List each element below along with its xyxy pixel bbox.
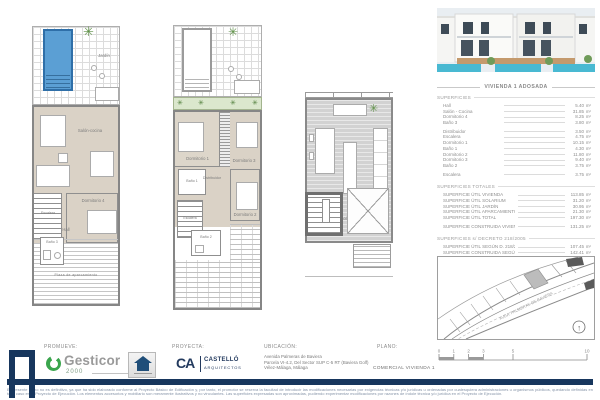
bed bbox=[236, 122, 258, 148]
section-title: SUPERFICIES s/ DECRETO 218/2005 bbox=[437, 236, 595, 241]
decreto-unit: m² bbox=[584, 250, 595, 255]
plant-icon: ✳ bbox=[177, 100, 183, 107]
leader-line bbox=[518, 200, 565, 201]
sofa bbox=[40, 115, 66, 147]
decreto-value: 142.41 bbox=[568, 250, 584, 255]
surface-unit: m² bbox=[584, 134, 595, 139]
room-label: Dormitorio 3 bbox=[224, 158, 264, 163]
badge-text-rule bbox=[134, 373, 152, 374]
leader-line bbox=[518, 247, 565, 248]
surface-value: 3.80 bbox=[568, 120, 584, 125]
total-unit: m² bbox=[584, 198, 595, 203]
house-outline: Dormitorio 1 Dormitorio 3 Baño 1 Distrib… bbox=[173, 110, 262, 310]
decreto-label: SUPERFICIE ÚTIL SEGÚN D. 218/2005 bbox=[443, 244, 515, 249]
outdoor-table bbox=[315, 128, 335, 174]
plano-label: PLANO: bbox=[377, 344, 398, 350]
chair bbox=[309, 152, 314, 160]
badge-house-icon bbox=[134, 356, 152, 363]
header-rule bbox=[552, 87, 595, 88]
scale-tick: 0 bbox=[438, 349, 441, 354]
decreto-unit: m² bbox=[584, 244, 595, 249]
decreto-row: SUPERFICIE CONSTRUIDA SEGÚN D. 218/2005 … bbox=[437, 250, 595, 256]
total-label: SUPERFICIE ÚTIL SOLARIUM bbox=[443, 198, 515, 203]
ground-floor-plan: ✳ Jardín Salón-cocina Escalera Dormito bbox=[32, 26, 120, 306]
section-title-text: SUPERFICIES bbox=[437, 95, 471, 100]
sun-lounger bbox=[343, 142, 357, 194]
bedroom-1: Dormitorio 1 bbox=[175, 112, 220, 167]
terrace: ✳ ✳ ✳ ✳ bbox=[173, 97, 262, 110]
promoter-year: 2000 bbox=[66, 369, 83, 375]
room-label: Escalera bbox=[34, 211, 62, 216]
fixture bbox=[54, 252, 61, 259]
proyecta-label: PROYECTA: bbox=[172, 344, 204, 350]
surface-group: Escalera 3.75 m² bbox=[437, 172, 595, 178]
surface-value: 8.25 bbox=[568, 114, 584, 119]
total-label: SUPERFICIE ÚTIL VIVIENDA bbox=[443, 192, 515, 197]
surface-value: 3.50 bbox=[568, 129, 584, 134]
room-label: Jardín bbox=[89, 53, 119, 58]
room-label: Dormitorio 1 bbox=[175, 156, 220, 161]
surface-unit: m² bbox=[584, 157, 595, 162]
room-label: Distribuidor bbox=[197, 176, 227, 181]
section-rule bbox=[498, 186, 595, 187]
totals-group: SUPERFICIE ÚTIL VIVIENDA 113.85 m² SUPER… bbox=[437, 192, 595, 220]
surface-label: Dormitorio 2 bbox=[443, 152, 501, 157]
badge-house-icon bbox=[137, 363, 149, 371]
stair-landing bbox=[322, 199, 330, 223]
surface-value: 10.15 bbox=[568, 140, 584, 145]
surface-value: 4.30 bbox=[568, 146, 584, 151]
section-title-text: SUPERFICIES TOTALES bbox=[437, 184, 495, 189]
garden-chair bbox=[91, 65, 97, 71]
first-floor-plan: ✳ ✳ ✳ ✳ ✳ Dormitorio 1 Dormitorio 3 bbox=[173, 25, 262, 310]
surface-label: Hall bbox=[443, 103, 501, 108]
leader-line bbox=[518, 212, 565, 213]
leader-line bbox=[518, 217, 565, 218]
chair bbox=[309, 134, 314, 142]
surface-value: 3.75 bbox=[568, 163, 584, 168]
total-unit: m² bbox=[584, 204, 595, 209]
bed bbox=[87, 210, 117, 234]
scale-bar-drawing: 0 1 2 3 5 10 bbox=[437, 348, 593, 366]
surface-unit: m² bbox=[584, 120, 595, 125]
architect-subtitle: ARQUITECTOS bbox=[204, 365, 242, 370]
section-title: SUPERFICIES TOTALES bbox=[437, 184, 595, 189]
surface-row: Escalera 3.75 m² bbox=[437, 172, 595, 178]
leader-line bbox=[504, 165, 565, 166]
surface-value: 3.75 bbox=[568, 172, 584, 177]
stairs: Escalera bbox=[34, 193, 62, 239]
stair-bulkhead bbox=[305, 192, 343, 236]
leader-line bbox=[504, 122, 565, 123]
surface-value: 5.40 bbox=[568, 103, 584, 108]
quality-badge bbox=[128, 352, 156, 378]
facade-render bbox=[437, 8, 595, 72]
address-line: Vélez-Málaga, Málaga bbox=[264, 365, 368, 371]
surface-group: Distribuidor 3.50 m² Escalera 4.75 m² Do… bbox=[437, 129, 595, 169]
section-title: SUPERFICIES bbox=[437, 95, 595, 100]
section-title-text: SUPERFICIES s/ DECRETO 218/2005 bbox=[437, 236, 526, 241]
surface-value: 31.85 bbox=[568, 109, 584, 114]
surface-label: Baño 1 bbox=[443, 146, 501, 151]
leader-line bbox=[504, 148, 565, 149]
plant-icon: ✳ bbox=[230, 100, 236, 107]
fixture bbox=[195, 245, 204, 253]
decreto-value: 107.45 bbox=[568, 244, 584, 249]
surface-label: Escalera bbox=[443, 172, 501, 177]
surface-label: Salón - Cocina bbox=[443, 109, 501, 114]
leader-line bbox=[504, 117, 565, 118]
site-plan-drawing: ↑ AVDA. PALMERAS DE BAVIERA bbox=[438, 257, 594, 339]
surface-table: VIVIENDA 1 ADOSADA SUPERFICIES Hall 5.40… bbox=[437, 84, 595, 261]
bed bbox=[236, 182, 258, 210]
surface-group: Hall 5.40 m² Salón - Cocina 31.85 m² Dor… bbox=[437, 103, 595, 126]
garden-shed bbox=[234, 80, 260, 94]
total-label: SUPERFICIE ÚTIL TOTAL bbox=[443, 215, 515, 220]
surface-unit: m² bbox=[584, 172, 595, 177]
surface-label: Dormitorio 3 bbox=[443, 157, 501, 162]
total-unit: m² bbox=[584, 224, 595, 229]
fixture bbox=[43, 250, 51, 260]
garden-chair bbox=[99, 73, 105, 79]
total-value: 131.25 bbox=[568, 224, 584, 229]
surface-label: Dormitorio 4 bbox=[443, 114, 501, 119]
surface-unit: m² bbox=[584, 103, 595, 108]
sheet-title: VIVIENDA 1 ADOSADA bbox=[484, 84, 547, 90]
built-area-row: SUPERFICIE CONSTRUIDA VIVIENDA 131.25 m² bbox=[437, 224, 595, 230]
bed bbox=[178, 122, 204, 152]
surface-unit: m² bbox=[584, 114, 595, 119]
leader-line bbox=[504, 142, 565, 143]
surface-unit: m² bbox=[584, 163, 595, 168]
surface-label: Distribuidor bbox=[443, 129, 501, 134]
bathroom-3: Baño 3 bbox=[40, 237, 64, 265]
total-unit: m² bbox=[584, 209, 595, 214]
surface-unit: m² bbox=[584, 140, 595, 145]
bedroom-4: Dormitorio 4 bbox=[66, 193, 118, 243]
total-value: 21.30 bbox=[568, 209, 584, 214]
total-value: 31.20 bbox=[568, 198, 584, 203]
total-value: 197.30 bbox=[568, 215, 584, 220]
garden-below: ✳ bbox=[173, 25, 262, 97]
tree-icon: ✳ bbox=[83, 25, 94, 38]
leader-line bbox=[504, 105, 565, 106]
total-unit: m² bbox=[584, 192, 595, 197]
skylight-window bbox=[333, 104, 367, 116]
surface-label: Baño 3 bbox=[443, 120, 501, 125]
surface-label: Baño 2 bbox=[443, 163, 501, 168]
total-label: SUPERFICIE ÚTIL JARDÍN bbox=[443, 204, 515, 209]
kitchen-counter bbox=[36, 165, 70, 187]
surface-value: 11.80 bbox=[568, 152, 584, 157]
garden-shed bbox=[95, 87, 119, 101]
pool bbox=[43, 29, 73, 91]
total-unit: m² bbox=[584, 215, 595, 220]
leader-line bbox=[504, 131, 565, 132]
garden-chair bbox=[228, 66, 234, 72]
room-label: Dormitorio 2 bbox=[225, 212, 265, 217]
plano-value: COMERCIAL VIVIENDA 1 bbox=[373, 366, 435, 371]
plan-sheet: ✳ Jardín Salón-cocina Escalera Dormito bbox=[0, 0, 600, 400]
leader-line bbox=[504, 160, 565, 161]
leader-line bbox=[518, 226, 565, 227]
plant-icon: ✳ bbox=[252, 100, 258, 107]
surface-row: Baño 2 3.75 m² bbox=[437, 163, 595, 169]
leader-line bbox=[504, 137, 565, 138]
header-rule bbox=[437, 87, 480, 88]
room-label: Salón-cocina bbox=[68, 128, 112, 133]
ubicacion-label: UBICACIÓN: bbox=[264, 344, 297, 350]
section-rule bbox=[529, 238, 595, 239]
promueve-label: PROMUEVE: bbox=[44, 344, 78, 350]
surface-value: 4.75 bbox=[568, 134, 584, 139]
tree-icon: ✳ bbox=[228, 26, 238, 38]
exterior-steps bbox=[353, 244, 391, 268]
garden-area: ✳ Jardín bbox=[32, 26, 120, 105]
architect-logo-mark: CA bbox=[176, 355, 194, 371]
decreto-group: SUPERFICIE ÚTIL SEGÚN D. 218/2005 107.45… bbox=[437, 244, 595, 255]
bathroom-2: Baño 2 bbox=[191, 230, 221, 256]
room-label: Dormitorio 4 bbox=[67, 198, 119, 203]
leader-line bbox=[504, 174, 565, 175]
scale-tick: 1 bbox=[453, 349, 456, 354]
site-plan: ↑ AVDA. PALMERAS DE BAVIERA bbox=[437, 256, 595, 340]
pool-steps bbox=[46, 74, 70, 88]
total-label: SUPERFICIE ÚTIL APARCAMIENTO bbox=[443, 209, 515, 214]
north-arrow-icon: ↑ bbox=[577, 324, 581, 333]
architect-name: CASTELLÓ bbox=[204, 357, 239, 363]
surface-unit: m² bbox=[584, 152, 595, 157]
render-image bbox=[437, 8, 595, 72]
pyramid-skylight bbox=[347, 188, 389, 234]
total-label: SUPERFICIE CONSTRUIDA VIVIENDA bbox=[443, 224, 515, 229]
dining-table bbox=[90, 151, 114, 177]
room-label: Plaza de aparcamiento bbox=[34, 273, 118, 278]
surface-label: Escalera bbox=[443, 134, 501, 139]
lower-roof bbox=[175, 260, 260, 308]
bedroom-2: Dormitorio 2 bbox=[230, 169, 260, 221]
architect-logo-divider bbox=[200, 356, 201, 372]
sun-lounger bbox=[373, 128, 388, 190]
address-block: Avenida Palmeras de Baviera Parcela VI-4… bbox=[264, 354, 368, 371]
room-label: Escalera bbox=[178, 216, 202, 221]
plot-line bbox=[305, 276, 393, 277]
pool-void-steps bbox=[185, 76, 209, 88]
plant-icon: ✳ bbox=[369, 104, 378, 115]
bedroom-3: Dormitorio 3 bbox=[230, 112, 260, 167]
scale-tick: 10 bbox=[584, 349, 590, 354]
living-kitchen: Salón-cocina bbox=[34, 107, 118, 193]
bathroom-1: Baño 1 bbox=[178, 169, 206, 195]
pool-void bbox=[182, 28, 212, 92]
scale-tick: 5 bbox=[512, 349, 515, 354]
leader-line bbox=[504, 154, 565, 155]
scale-bar: 0 1 2 3 5 10 bbox=[437, 348, 593, 366]
gesticor-gate-logo bbox=[9, 350, 35, 398]
section-rule bbox=[474, 97, 595, 98]
total-value: 30.95 bbox=[568, 204, 584, 209]
decreto-label: SUPERFICIE CONSTRUIDA SEGÚN D. 218/2005 bbox=[443, 250, 515, 255]
table-header: VIVIENDA 1 ADOSADA bbox=[437, 84, 595, 90]
plant-icon: ✳ bbox=[198, 100, 204, 107]
scale-tick: 3 bbox=[482, 349, 485, 354]
total-row: SUPERFICIE ÚTIL TOTAL 197.30 m² bbox=[437, 215, 595, 221]
total-value: 113.85 bbox=[568, 192, 584, 197]
surface-unit: m² bbox=[584, 109, 595, 114]
surface-unit: m² bbox=[584, 146, 595, 151]
room-label: Baño 2 bbox=[192, 235, 220, 240]
leader-line bbox=[504, 111, 565, 112]
scale-tick: 2 bbox=[467, 349, 470, 354]
room-label: Hall bbox=[58, 227, 74, 232]
promoter-name: Gesticor bbox=[64, 353, 120, 368]
house-outline: Salón-cocina Escalera Dormitorio 4 Plaza… bbox=[32, 105, 120, 306]
surface-value: 9.40 bbox=[568, 157, 584, 162]
roof-plan: ✳ Solárium bbox=[305, 92, 393, 278]
leader-line bbox=[518, 195, 565, 196]
disclaimer-text: El presente plano no es definitivo, ya q… bbox=[7, 388, 593, 397]
leader-line bbox=[518, 252, 565, 253]
accent-bar bbox=[7, 379, 593, 385]
lower-roof bbox=[230, 224, 260, 260]
gesticor-logo-icon bbox=[46, 356, 61, 371]
surface-unit: m² bbox=[584, 129, 595, 134]
leader-line bbox=[518, 206, 565, 207]
surface-row: Baño 3 3.80 m² bbox=[437, 120, 595, 126]
room-label: Baño 3 bbox=[41, 240, 63, 245]
surface-label: Dormitorio 1 bbox=[443, 140, 501, 145]
table bbox=[58, 153, 68, 163]
